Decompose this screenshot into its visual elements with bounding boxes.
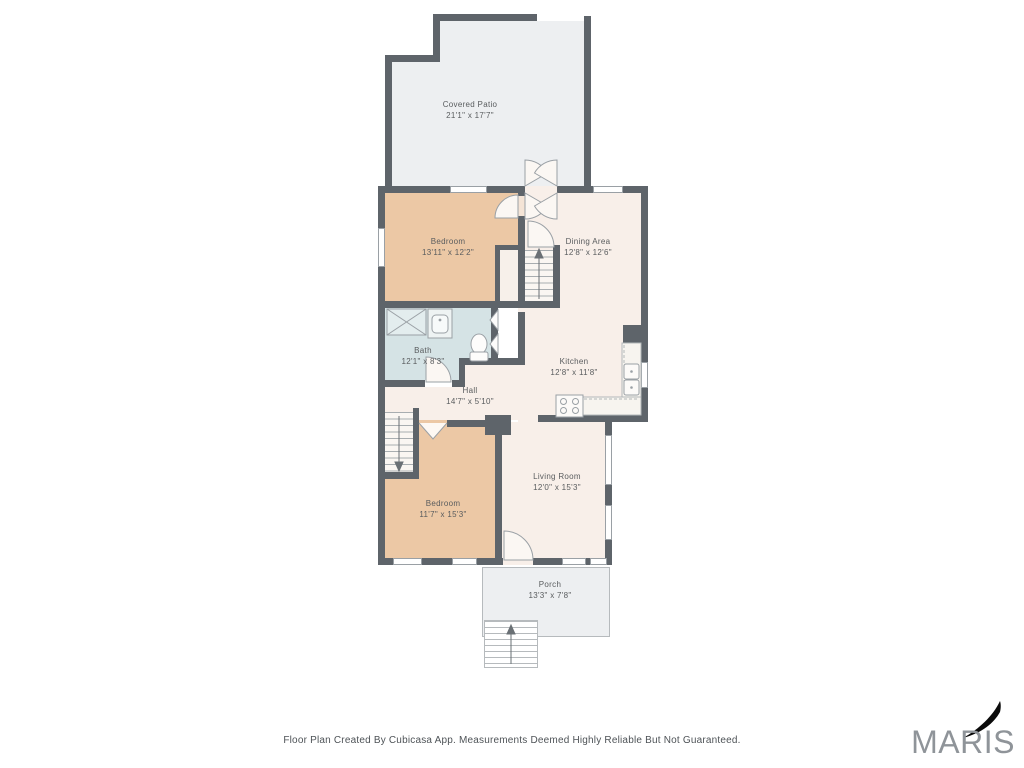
- wall: [623, 325, 648, 343]
- room-label-dining-area: Dining Area12'8" x 12'6": [564, 236, 612, 258]
- floor-plan-canvas: Covered Patio21'1" x 17'7" Bedroom13'11"…: [0, 0, 1024, 768]
- window: [605, 505, 612, 540]
- window: [641, 362, 648, 388]
- window: [452, 558, 477, 565]
- door-opening: [518, 196, 525, 216]
- wall: [495, 245, 518, 250]
- maris-logo: MARIS: [908, 700, 1018, 764]
- wall: [518, 312, 525, 365]
- window: [590, 558, 607, 565]
- maris-logo-text: MARIS: [908, 724, 1018, 761]
- door-opening: [419, 420, 447, 427]
- wall: [385, 380, 425, 387]
- wall: [385, 55, 440, 62]
- room-label-porch: Porch13'3" x 7'8": [528, 579, 571, 601]
- room-label-bedroom-1: Bedroom13'11" x 12'2": [422, 236, 474, 258]
- wall: [485, 415, 511, 435]
- footer-disclaimer: Floor Plan Created By Cubicasa App. Meas…: [0, 735, 1024, 746]
- wall: [584, 16, 591, 186]
- wall: [447, 420, 485, 427]
- room-label-kitchen: Kitchen12'8" x 11'8": [550, 356, 597, 378]
- wall: [495, 301, 560, 308]
- room-label-hall: Hall14'7" x 5'10": [446, 385, 494, 407]
- room-label-living-room: Living Room12'0" x 15'3": [533, 471, 581, 493]
- stair-side-strip: [500, 250, 518, 301]
- door-opening: [525, 186, 557, 193]
- porch-stairs: [484, 620, 538, 668]
- covered-patio-area: [392, 62, 440, 186]
- window: [393, 558, 422, 565]
- wall: [378, 472, 419, 479]
- wall: [495, 245, 500, 306]
- wall: [495, 435, 502, 558]
- window: [562, 558, 586, 565]
- window: [450, 186, 487, 193]
- wall: [385, 55, 392, 186]
- wall: [553, 245, 560, 308]
- room-label-bath: Bath12'1" x 8'3": [401, 345, 444, 367]
- wall: [491, 307, 498, 365]
- hall-area: [465, 365, 518, 387]
- wall: [459, 358, 525, 365]
- door-opening: [503, 558, 533, 565]
- wall: [518, 216, 525, 245]
- window: [593, 186, 623, 193]
- window: [378, 228, 385, 267]
- window: [605, 435, 612, 485]
- wall: [459, 358, 465, 387]
- staircase-mid: [525, 250, 553, 301]
- wall: [538, 415, 648, 422]
- wall: [433, 14, 537, 21]
- wall: [413, 408, 419, 479]
- room-label-bedroom-2: Bedroom11'7" x 15'3": [419, 498, 466, 520]
- wall: [518, 245, 525, 308]
- staircase-hall: [385, 412, 413, 472]
- room-label-covered-patio: Covered Patio21'1" x 17'7": [443, 99, 498, 121]
